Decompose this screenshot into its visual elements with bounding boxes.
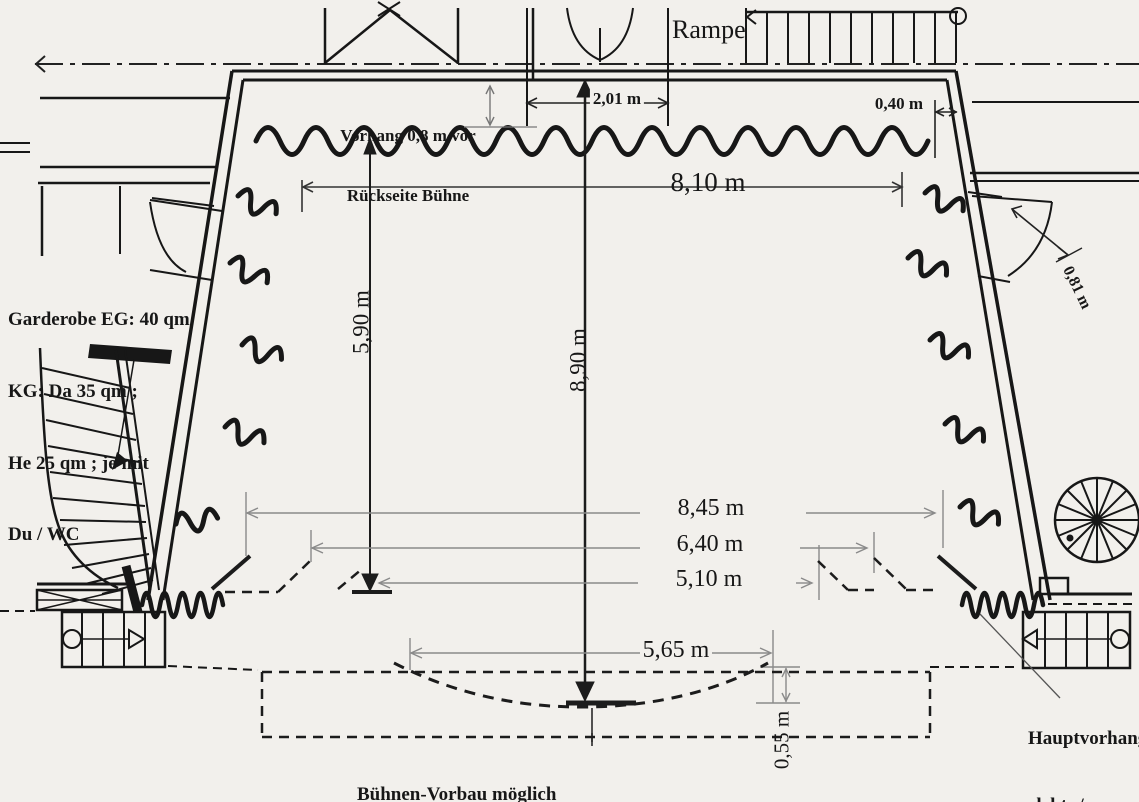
vorhang-note-line1: Vorhang 0,8 m vor xyxy=(327,126,489,146)
dim-590-label: 5,90 m xyxy=(347,290,374,354)
hauptvorhang-line1: Hauptvorhang xyxy=(1028,728,1139,750)
vorhang-note-line2: Rückseite Bühne xyxy=(327,186,489,206)
dim-510-label: 5,10 m xyxy=(676,565,743,593)
rampe-label: Rampe xyxy=(672,15,746,46)
dim-640-lines xyxy=(311,530,874,573)
stage-floor-plan: Rampe Vorhang 0,8 m vor Rückseite Bühne … xyxy=(0,0,1139,802)
curtain-position-lines xyxy=(212,556,976,592)
dim-510-lines xyxy=(379,545,819,600)
ramp xyxy=(746,8,966,63)
building-walls-left xyxy=(0,98,230,256)
dim-081-lines xyxy=(1012,206,1082,262)
garderobe-line4: Du / WC xyxy=(8,523,190,547)
garderobe-line2: KG: Da 35 qm ; xyxy=(8,380,190,404)
dim-845-lines xyxy=(246,490,943,556)
dim-890-lines xyxy=(566,80,636,742)
dim-565-label: 5,65 m xyxy=(643,636,710,664)
dim-890-label: 8,90 m xyxy=(564,328,591,392)
building-walls-right xyxy=(970,102,1139,181)
dim-640-label: 6,40 m xyxy=(677,530,744,558)
dim-055-label: 0,55 m xyxy=(770,711,795,769)
hauptvorhang-note: Hauptvorhang elektr./manue xyxy=(1028,683,1139,802)
vorbau-outline xyxy=(262,672,930,746)
garderobe-line3: He 25 qm ; je mit xyxy=(8,452,190,476)
vorhang-note: Vorhang 0,8 m vor Rückseite Bühne xyxy=(327,86,489,246)
dim-845-label: 8,45 m xyxy=(678,494,745,522)
vorbau-line1: Bühnen-Vorbau möglich xyxy=(357,784,561,802)
staircase-spiral xyxy=(1055,478,1139,562)
dim-040-label: 0,40 m xyxy=(875,94,923,114)
hauptvorhang-line2: elektr./manue xyxy=(1028,795,1139,802)
dim-201-label: 2,01 m xyxy=(590,89,644,109)
garderobe-note: Garderobe EG: 40 qm KG: Da 35 qm ; He 25… xyxy=(8,260,190,595)
garderobe-line1: Garderobe EG: 40 qm xyxy=(8,308,190,332)
dim-810-label: 8,10 m xyxy=(670,167,745,199)
vorbau-note: Bühnen-Vorbau möglich Breite 8,0 m; Tief… xyxy=(357,739,561,802)
